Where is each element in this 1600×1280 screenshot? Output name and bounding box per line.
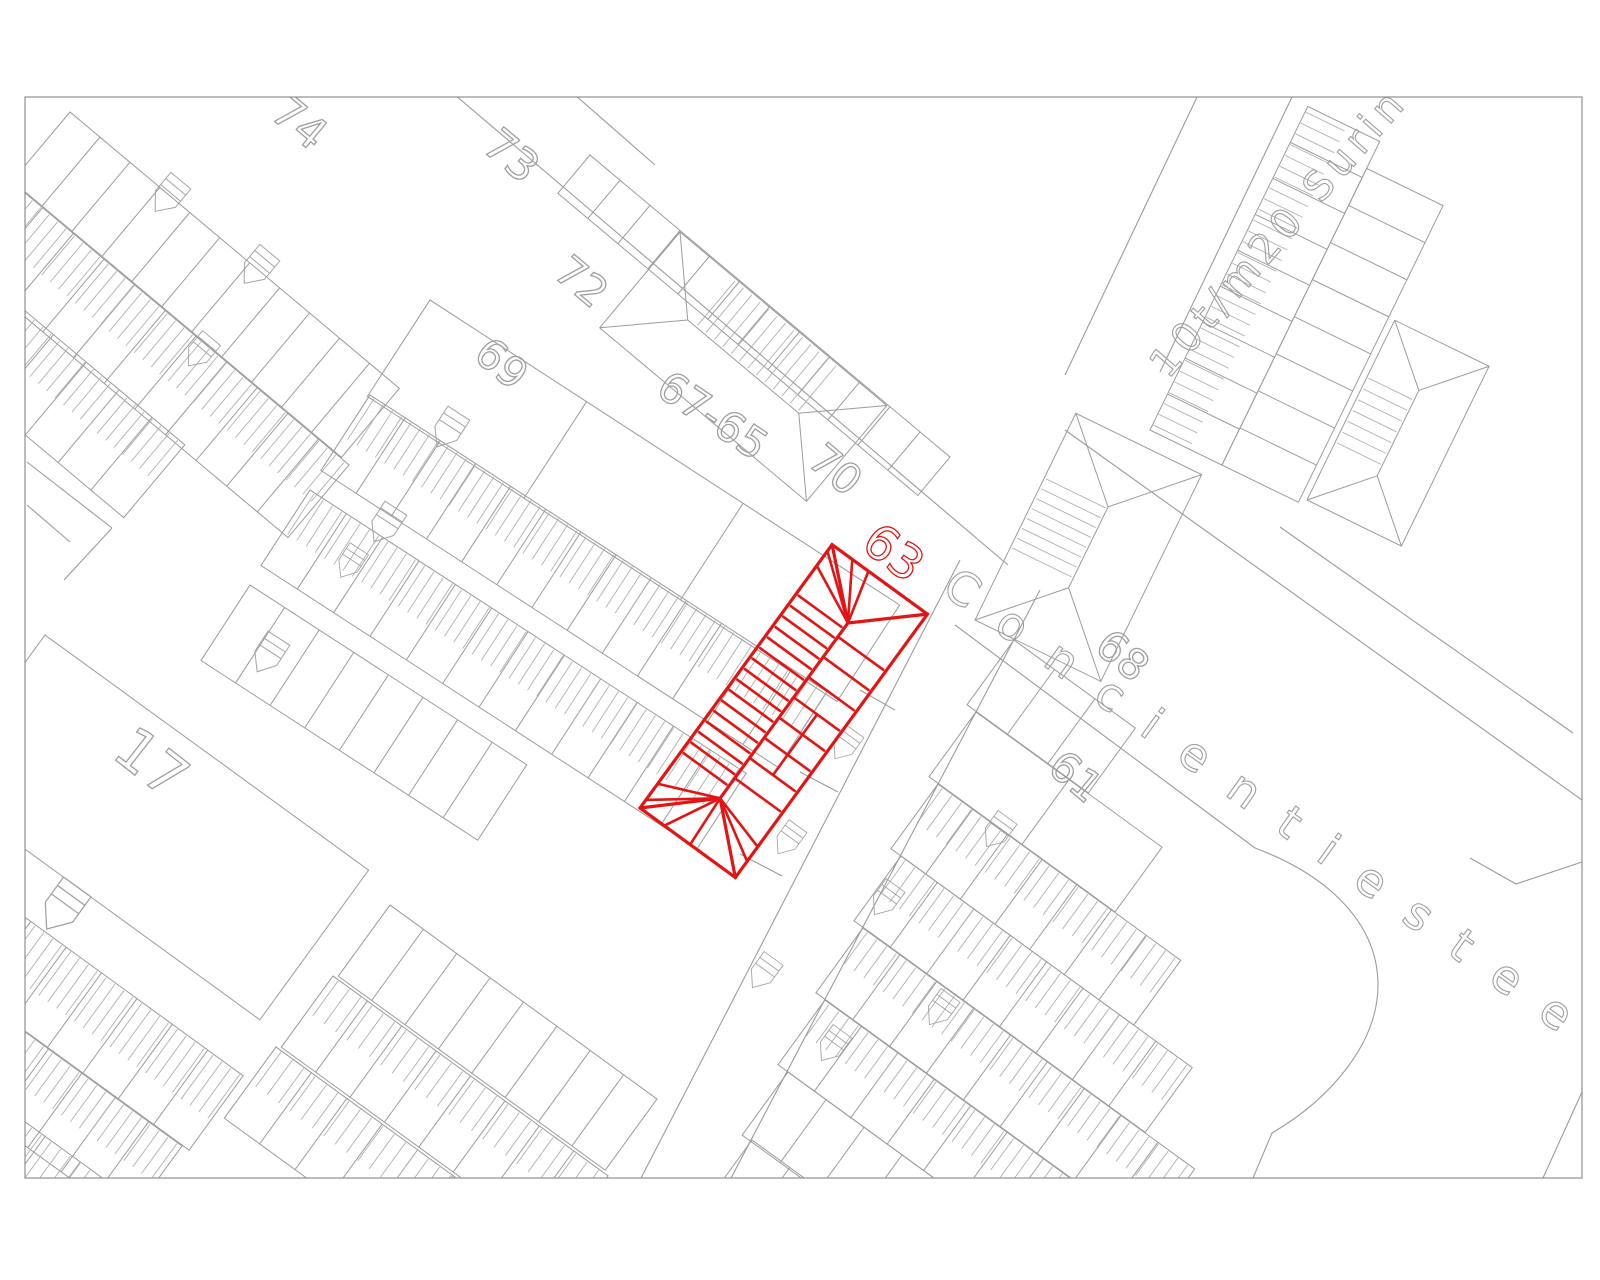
house-number-label: 17 <box>101 713 201 812</box>
house-number-label: 70 <box>799 434 871 506</box>
parcel-strip <box>201 585 527 840</box>
parcel-strip <box>816 928 1195 1234</box>
roof-hatching <box>0 1064 148 1255</box>
house-symbol <box>331 543 368 584</box>
house-number-label: 73 <box>473 118 549 193</box>
parcel-strip <box>12 112 399 457</box>
roof-hatching <box>313 981 599 1205</box>
house-symbol <box>426 406 470 454</box>
street-edge-line <box>27 505 70 542</box>
parcel-strip <box>0 952 182 1220</box>
parcel-strip <box>281 976 608 1247</box>
house-symbol <box>812 1025 852 1068</box>
parcel-strip <box>854 856 1192 1132</box>
roof-hatching <box>288 494 739 810</box>
roof-hatching <box>0 874 240 1118</box>
parcel-strip <box>0 182 349 538</box>
parcel-strip <box>891 784 1181 1025</box>
street-name-label: Concientiestee <box>934 557 1584 1042</box>
map-content-layer: 7473726967-657063686117Concientiestee10t… <box>0 83 1584 1280</box>
parcel-strip <box>0 252 185 518</box>
parcel-strip <box>778 1000 1189 1280</box>
house-number-label: 69 <box>465 328 537 400</box>
parcel-strip <box>929 712 1162 912</box>
parcel-strip <box>1222 168 1443 502</box>
street-edge-line <box>1280 527 1573 733</box>
parcel-strip <box>367 300 899 701</box>
cad-map-canvas: 7473726967-657063686117Concientiestee10t… <box>0 0 1600 1280</box>
parcel-strip <box>261 490 746 849</box>
parcel-strip <box>338 905 657 1170</box>
house-number-label: 67-65 <box>648 361 777 470</box>
drawing-frame-border <box>25 97 1582 1178</box>
house-number-label: 72 <box>545 246 617 318</box>
house-symbol <box>246 631 290 679</box>
street-edge-line <box>1543 1092 1582 1178</box>
street-edge-line <box>64 528 112 580</box>
street-edge-line <box>1516 862 1582 884</box>
roof-hatching <box>256 1052 553 1280</box>
house-number-label: 61 <box>1039 741 1111 813</box>
house-symbol <box>743 952 783 995</box>
parcel-strip <box>717 1140 979 1280</box>
parcel-strip <box>224 1047 559 1280</box>
street-edge-line <box>640 560 960 1180</box>
street-edge-line <box>1470 858 1516 884</box>
street-edge-line <box>575 95 655 165</box>
cad-map-viewport: 7473726967-657063686117Concientiestee10t… <box>0 0 1600 1280</box>
parcel-strip <box>0 1060 150 1280</box>
house-symbol <box>234 244 280 291</box>
hip-roof-building <box>1307 320 1489 546</box>
house-symbol <box>363 501 407 549</box>
roof-hatching <box>844 932 1187 1196</box>
